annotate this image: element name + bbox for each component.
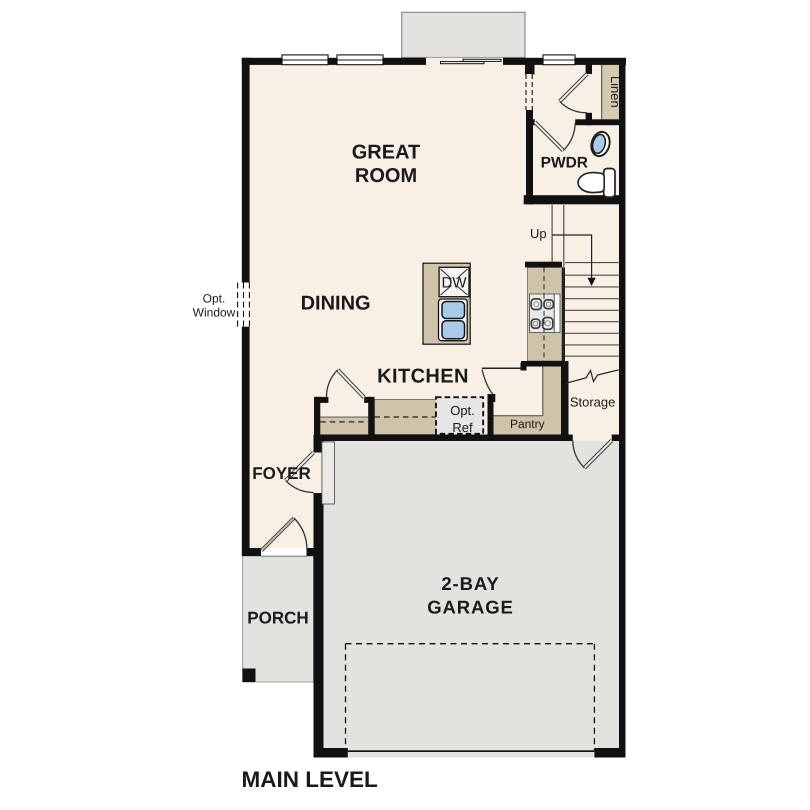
svg-text:GREAT: GREAT: [352, 142, 421, 164]
svg-text:GARAGE: GARAGE: [427, 597, 514, 618]
svg-text:DINING: DINING: [301, 293, 371, 315]
svg-text:Up: Up: [530, 226, 547, 241]
svg-text:Pantry: Pantry: [510, 417, 545, 431]
svg-text:DW: DW: [442, 275, 468, 292]
svg-text:MAIN LEVEL: MAIN LEVEL: [242, 767, 379, 792]
svg-text:Opt.: Opt.: [450, 403, 475, 418]
svg-text:FOYER: FOYER: [252, 464, 311, 483]
svg-text:KITCHEN: KITCHEN: [377, 365, 469, 387]
svg-text:Linen: Linen: [608, 76, 623, 108]
svg-text:ROOM: ROOM: [355, 165, 417, 187]
svg-text:Ref: Ref: [452, 420, 473, 435]
svg-text:PORCH: PORCH: [247, 609, 308, 628]
svg-text:PWDR: PWDR: [541, 155, 588, 172]
svg-text:Opt.: Opt.: [203, 292, 226, 306]
svg-text:2-BAY: 2-BAY: [441, 573, 499, 594]
svg-text:Storage: Storage: [570, 395, 616, 410]
svg-text:Window: Window: [193, 306, 236, 320]
